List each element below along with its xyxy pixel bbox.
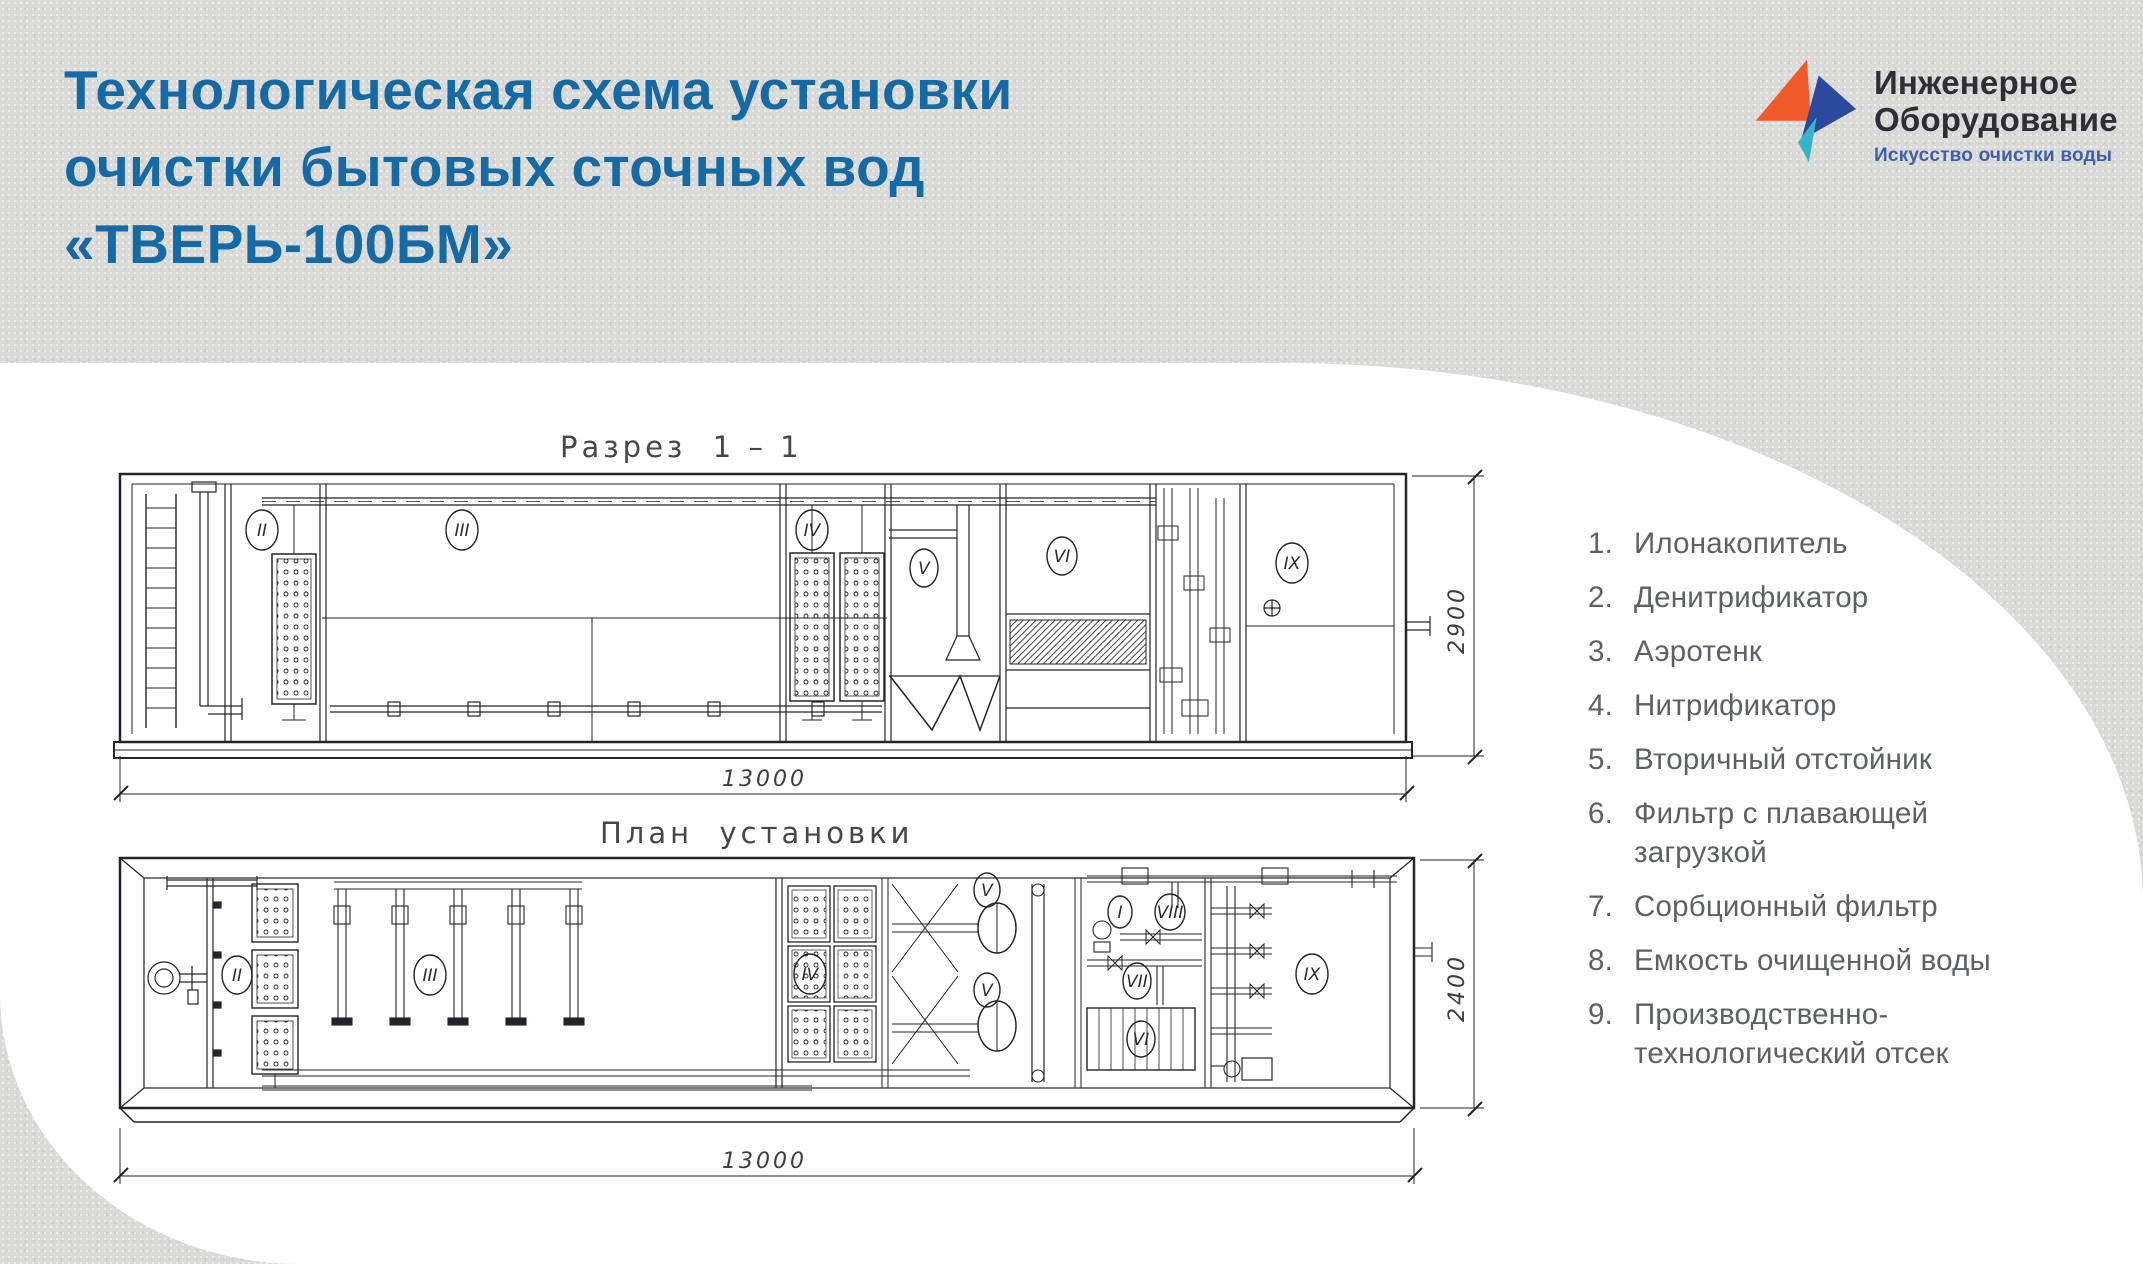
svg-text:IV: IV — [804, 521, 822, 541]
plan-width-dim: 13000 — [722, 1149, 807, 1174]
numeral-badge: VI — [1047, 537, 1077, 575]
legend-item: 4.Нитрификатор — [1588, 686, 2080, 725]
aeration-bottom-header — [330, 702, 882, 716]
title-line-2: очистки бытовых сточных вод — [64, 129, 1564, 206]
section-drawing: II III IV V VI IX 13000 2900 — [112, 468, 1512, 813]
legend-item-number: 7. — [1588, 887, 1634, 926]
legend-item-label: Сорбционный фильтр — [1634, 887, 1938, 926]
logo-text: Инженерное Оборудование Искусство очистк… — [1874, 48, 2118, 167]
section-drawing-title: Разрез 1 – 1 — [560, 430, 803, 464]
svg-text:V: V — [981, 881, 994, 901]
logo-mark-icon — [1742, 48, 1860, 166]
numeral-badge: VI — [1127, 1021, 1155, 1057]
legend-item: 3.Аэротенк — [1588, 632, 2080, 671]
svg-text:I: I — [1117, 903, 1122, 923]
legend-item-number: 8. — [1588, 941, 1634, 980]
title-line-3: «ТВЕРЬ-100БМ» — [64, 206, 1564, 283]
legend-item-label: Илонакопитель — [1634, 524, 1848, 563]
svg-text:IX: IX — [1284, 554, 1301, 574]
svg-text:III: III — [454, 521, 469, 541]
section-height-dim: 2900 — [1445, 586, 1470, 654]
valve-manifold — [1211, 886, 1432, 1082]
floating-media-filter-band — [1006, 614, 1150, 708]
title-line-1: Технологическая схема установки — [64, 52, 1564, 129]
legend-list: 1.Илонакопитель 2.Денитрификатор 3.Аэрот… — [1588, 524, 2080, 1073]
legend-item-number: 9. — [1588, 995, 1634, 1073]
numeral-badge: III — [446, 510, 478, 550]
legend-item-label: Производственно- технологический отсек — [1634, 995, 1949, 1073]
plan-drawing-title: План установки — [600, 816, 913, 850]
legend-item: 1.Илонакопитель — [1588, 524, 2080, 563]
legend-item: 2.Денитрификатор — [1588, 578, 2080, 617]
numeral-badge: VII — [1123, 963, 1151, 999]
clarifier-center-pipe — [889, 505, 1000, 730]
legend-item: 5.Вторичный отстойник — [1588, 740, 2080, 779]
legend-item-label: Аэротенк — [1634, 632, 1762, 671]
pipe-bay — [1158, 488, 1230, 734]
numeral-badge: III — [414, 955, 446, 995]
svg-text:II: II — [232, 966, 242, 986]
legend: 1.Илонакопитель 2.Денитрификатор 3.Аэрот… — [1588, 524, 2080, 1088]
numeral-badge: V — [910, 549, 938, 587]
legend-item-number: 1. — [1588, 524, 1634, 563]
logo-name: Инженерное Оборудование — [1874, 64, 2118, 138]
legend-item: 6.Фильтр с плавающей загрузкой — [1588, 794, 2080, 872]
logo-tagline: Искусство очистки воды — [1874, 145, 2118, 167]
skid-outline — [120, 858, 1414, 1122]
svg-text:IX: IX — [1304, 965, 1321, 985]
svg-text:V: V — [981, 981, 994, 1001]
legend-item-label: Вторичный отстойник — [1634, 740, 1932, 779]
section-numerals: II III IV V VI IX — [246, 510, 1308, 587]
legend-item-number: 2. — [1588, 578, 1634, 617]
perforated-panel-column — [252, 884, 298, 1088]
svg-text:VI: VI — [1133, 1030, 1150, 1050]
numeral-badge: V — [974, 973, 1000, 1007]
legend-item-number: 6. — [1588, 794, 1634, 872]
left-partition-wall — [207, 878, 221, 1088]
inlet-standpipe — [192, 482, 242, 720]
svg-text:VII: VII — [1126, 972, 1148, 992]
numeral-badge: VIII — [1155, 894, 1185, 930]
legend-item-number: 4. — [1588, 686, 1634, 725]
numeral-badge: IX — [1296, 954, 1328, 994]
mid-partition-wall — [776, 878, 782, 1088]
legend-item-label: Нитрификатор — [1634, 686, 1837, 725]
top-collector-pipe — [262, 498, 1156, 505]
service-ladder — [146, 494, 176, 728]
svg-text:III: III — [422, 966, 437, 986]
bottom-long-pipes — [262, 1070, 970, 1090]
svg-text:II: II — [257, 521, 267, 541]
perforated-panel-denitrifier — [272, 505, 316, 720]
legend-item-label: Емкость очищенной воды — [1634, 941, 1991, 980]
plan-drawing: II III IV V V I VIII VII — [112, 850, 1512, 1195]
page-title: Технологическая схема установки очистки … — [64, 52, 1564, 283]
company-logo: Инженерное Оборудование Искусство очистк… — [1742, 48, 2118, 167]
numeral-badge: IX — [1276, 543, 1308, 583]
legend-item: 9.Производственно- технологический отсек — [1588, 995, 2080, 1073]
legend-item-label: Денитрификатор — [1634, 578, 1868, 617]
svg-text:IV: IV — [802, 965, 820, 985]
numeral-badge: II — [246, 510, 278, 550]
svg-text:V: V — [918, 559, 931, 579]
section-width-dim: 13000 — [722, 767, 807, 792]
svg-text:VI: VI — [1054, 547, 1071, 567]
aeration-drop-pipes — [332, 882, 584, 1025]
legend-item-number: 3. — [1588, 632, 1634, 671]
slide: { "page": {"background": "#dadad8", "pan… — [0, 0, 2143, 1264]
plan-numerals: II III IV V V I VIII VII — [222, 873, 1328, 1057]
legend-item-number: 5. — [1588, 740, 1634, 779]
svg-text:VIII: VIII — [1157, 903, 1184, 923]
plan-height-dim: 2400 — [1445, 954, 1470, 1022]
legend-item-label: Фильтр с плавающей загрузкой — [1634, 794, 1928, 872]
legend-item: 8.Емкость очищенной воды — [1588, 941, 2080, 980]
legend-item: 7.Сорбционный фильтр — [1588, 887, 2080, 926]
numeral-badge: I — [1108, 896, 1132, 928]
numeral-badge: II — [222, 956, 252, 994]
